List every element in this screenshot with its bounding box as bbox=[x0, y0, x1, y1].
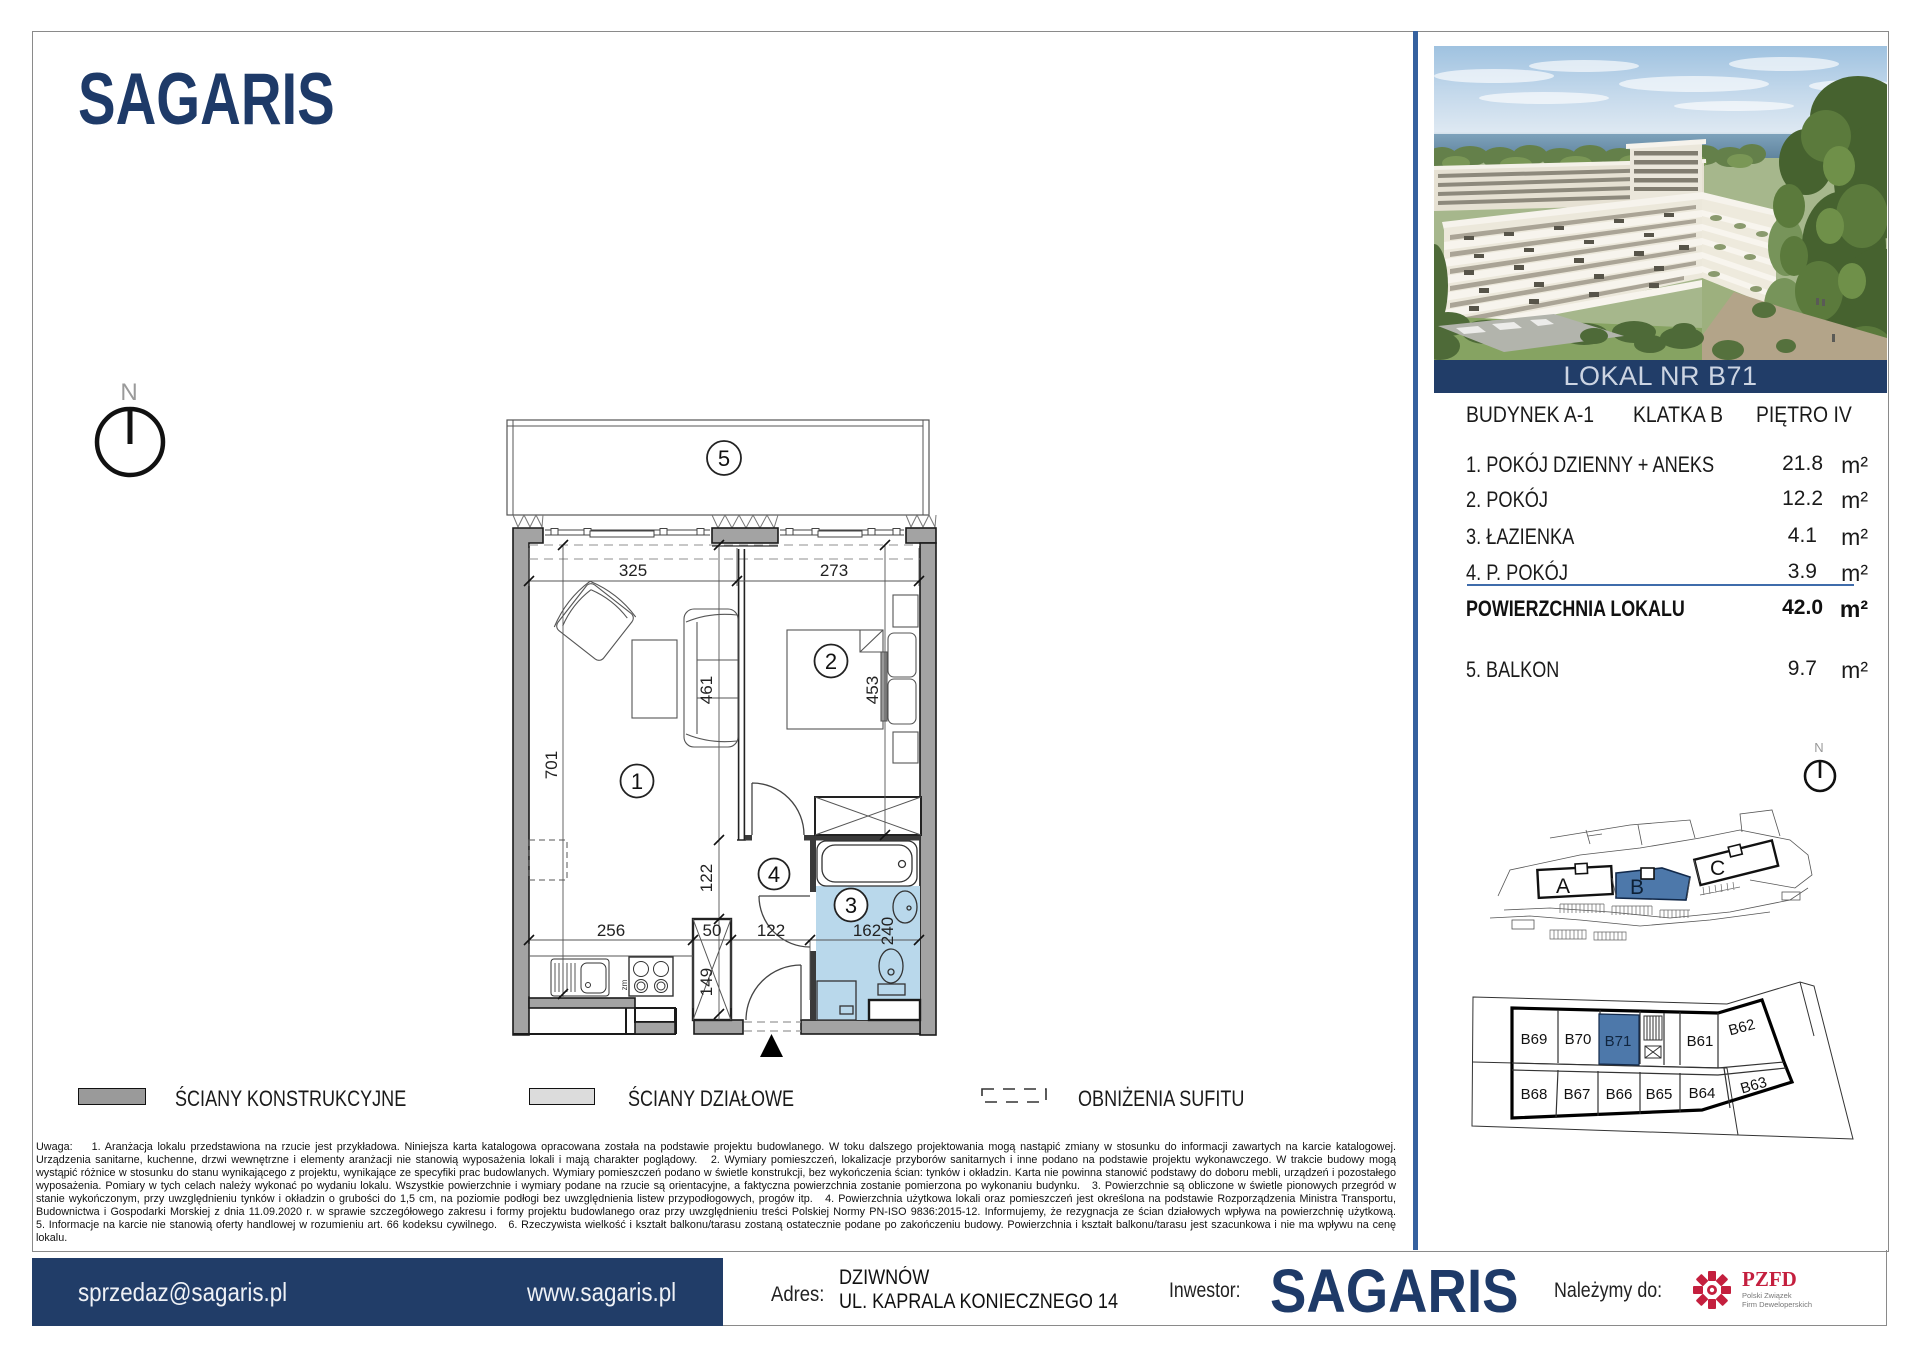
svg-text:B66: B66 bbox=[1606, 1086, 1633, 1103]
svg-text:A: A bbox=[1556, 875, 1570, 898]
svg-text:162: 162 bbox=[853, 921, 881, 940]
svg-text:1: 1 bbox=[631, 769, 643, 794]
svg-text:B70: B70 bbox=[1565, 1031, 1592, 1048]
svg-text:325: 325 bbox=[619, 561, 647, 580]
svg-text:3: 3 bbox=[845, 893, 857, 918]
svg-text:5: 5 bbox=[718, 446, 730, 471]
svg-text:N: N bbox=[120, 379, 137, 406]
svg-text:453: 453 bbox=[863, 676, 882, 704]
svg-text:50: 50 bbox=[703, 921, 722, 940]
svg-text:PZFD: PZFD bbox=[1742, 1268, 1797, 1291]
svg-text:B68: B68 bbox=[1521, 1086, 1548, 1103]
svg-text:701: 701 bbox=[542, 751, 561, 779]
svg-text:B71: B71 bbox=[1605, 1033, 1632, 1050]
svg-text:B: B bbox=[1630, 876, 1644, 899]
svg-text:122: 122 bbox=[757, 921, 785, 940]
svg-text:B64: B64 bbox=[1689, 1085, 1716, 1102]
svg-text:Polski Związek: Polski Związek bbox=[1742, 1291, 1792, 1300]
svg-text:B61: B61 bbox=[1687, 1033, 1714, 1050]
svg-text:C: C bbox=[1710, 857, 1725, 880]
svg-text:N: N bbox=[1814, 740, 1823, 755]
svg-text:Firm Deweloperskich: Firm Deweloperskich bbox=[1742, 1300, 1812, 1309]
svg-text:122: 122 bbox=[697, 864, 716, 892]
svg-text:B63: B63 bbox=[1739, 1074, 1769, 1098]
svg-text:zm: zm bbox=[620, 979, 629, 990]
svg-text:240: 240 bbox=[878, 917, 897, 945]
svg-text:149: 149 bbox=[697, 968, 716, 996]
svg-text:B69: B69 bbox=[1521, 1031, 1548, 1048]
svg-text:273: 273 bbox=[820, 561, 848, 580]
svg-text:461: 461 bbox=[697, 676, 716, 704]
svg-text:B65: B65 bbox=[1646, 1086, 1673, 1103]
svg-text:2: 2 bbox=[825, 649, 837, 674]
svg-text:256: 256 bbox=[597, 921, 625, 940]
svg-text:B62: B62 bbox=[1727, 1016, 1757, 1039]
svg-text:4: 4 bbox=[768, 862, 780, 887]
svg-text:B67: B67 bbox=[1564, 1086, 1591, 1103]
